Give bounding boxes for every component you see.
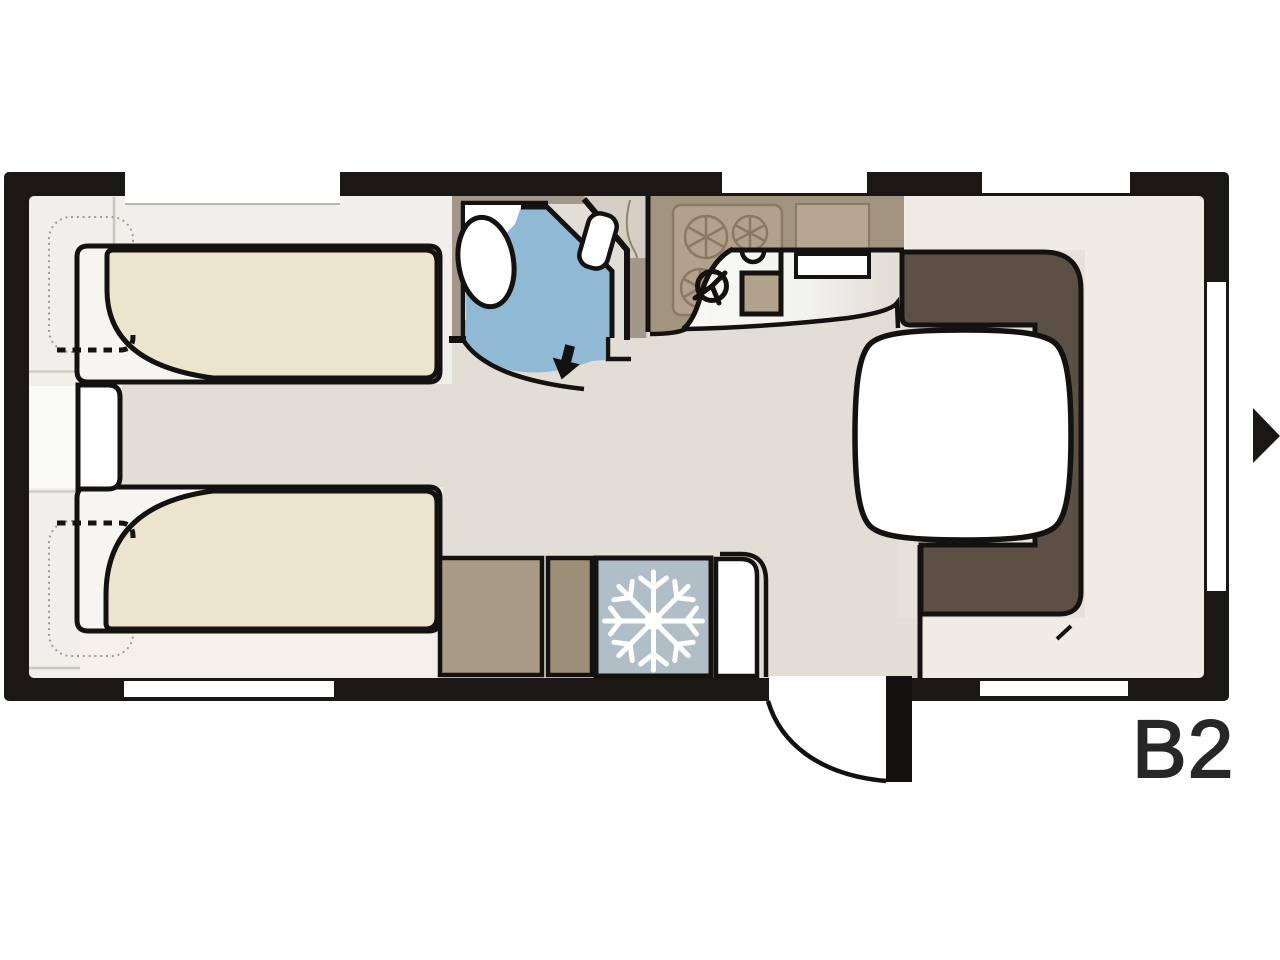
svg-text:B2: B2 bbox=[1132, 704, 1234, 795]
